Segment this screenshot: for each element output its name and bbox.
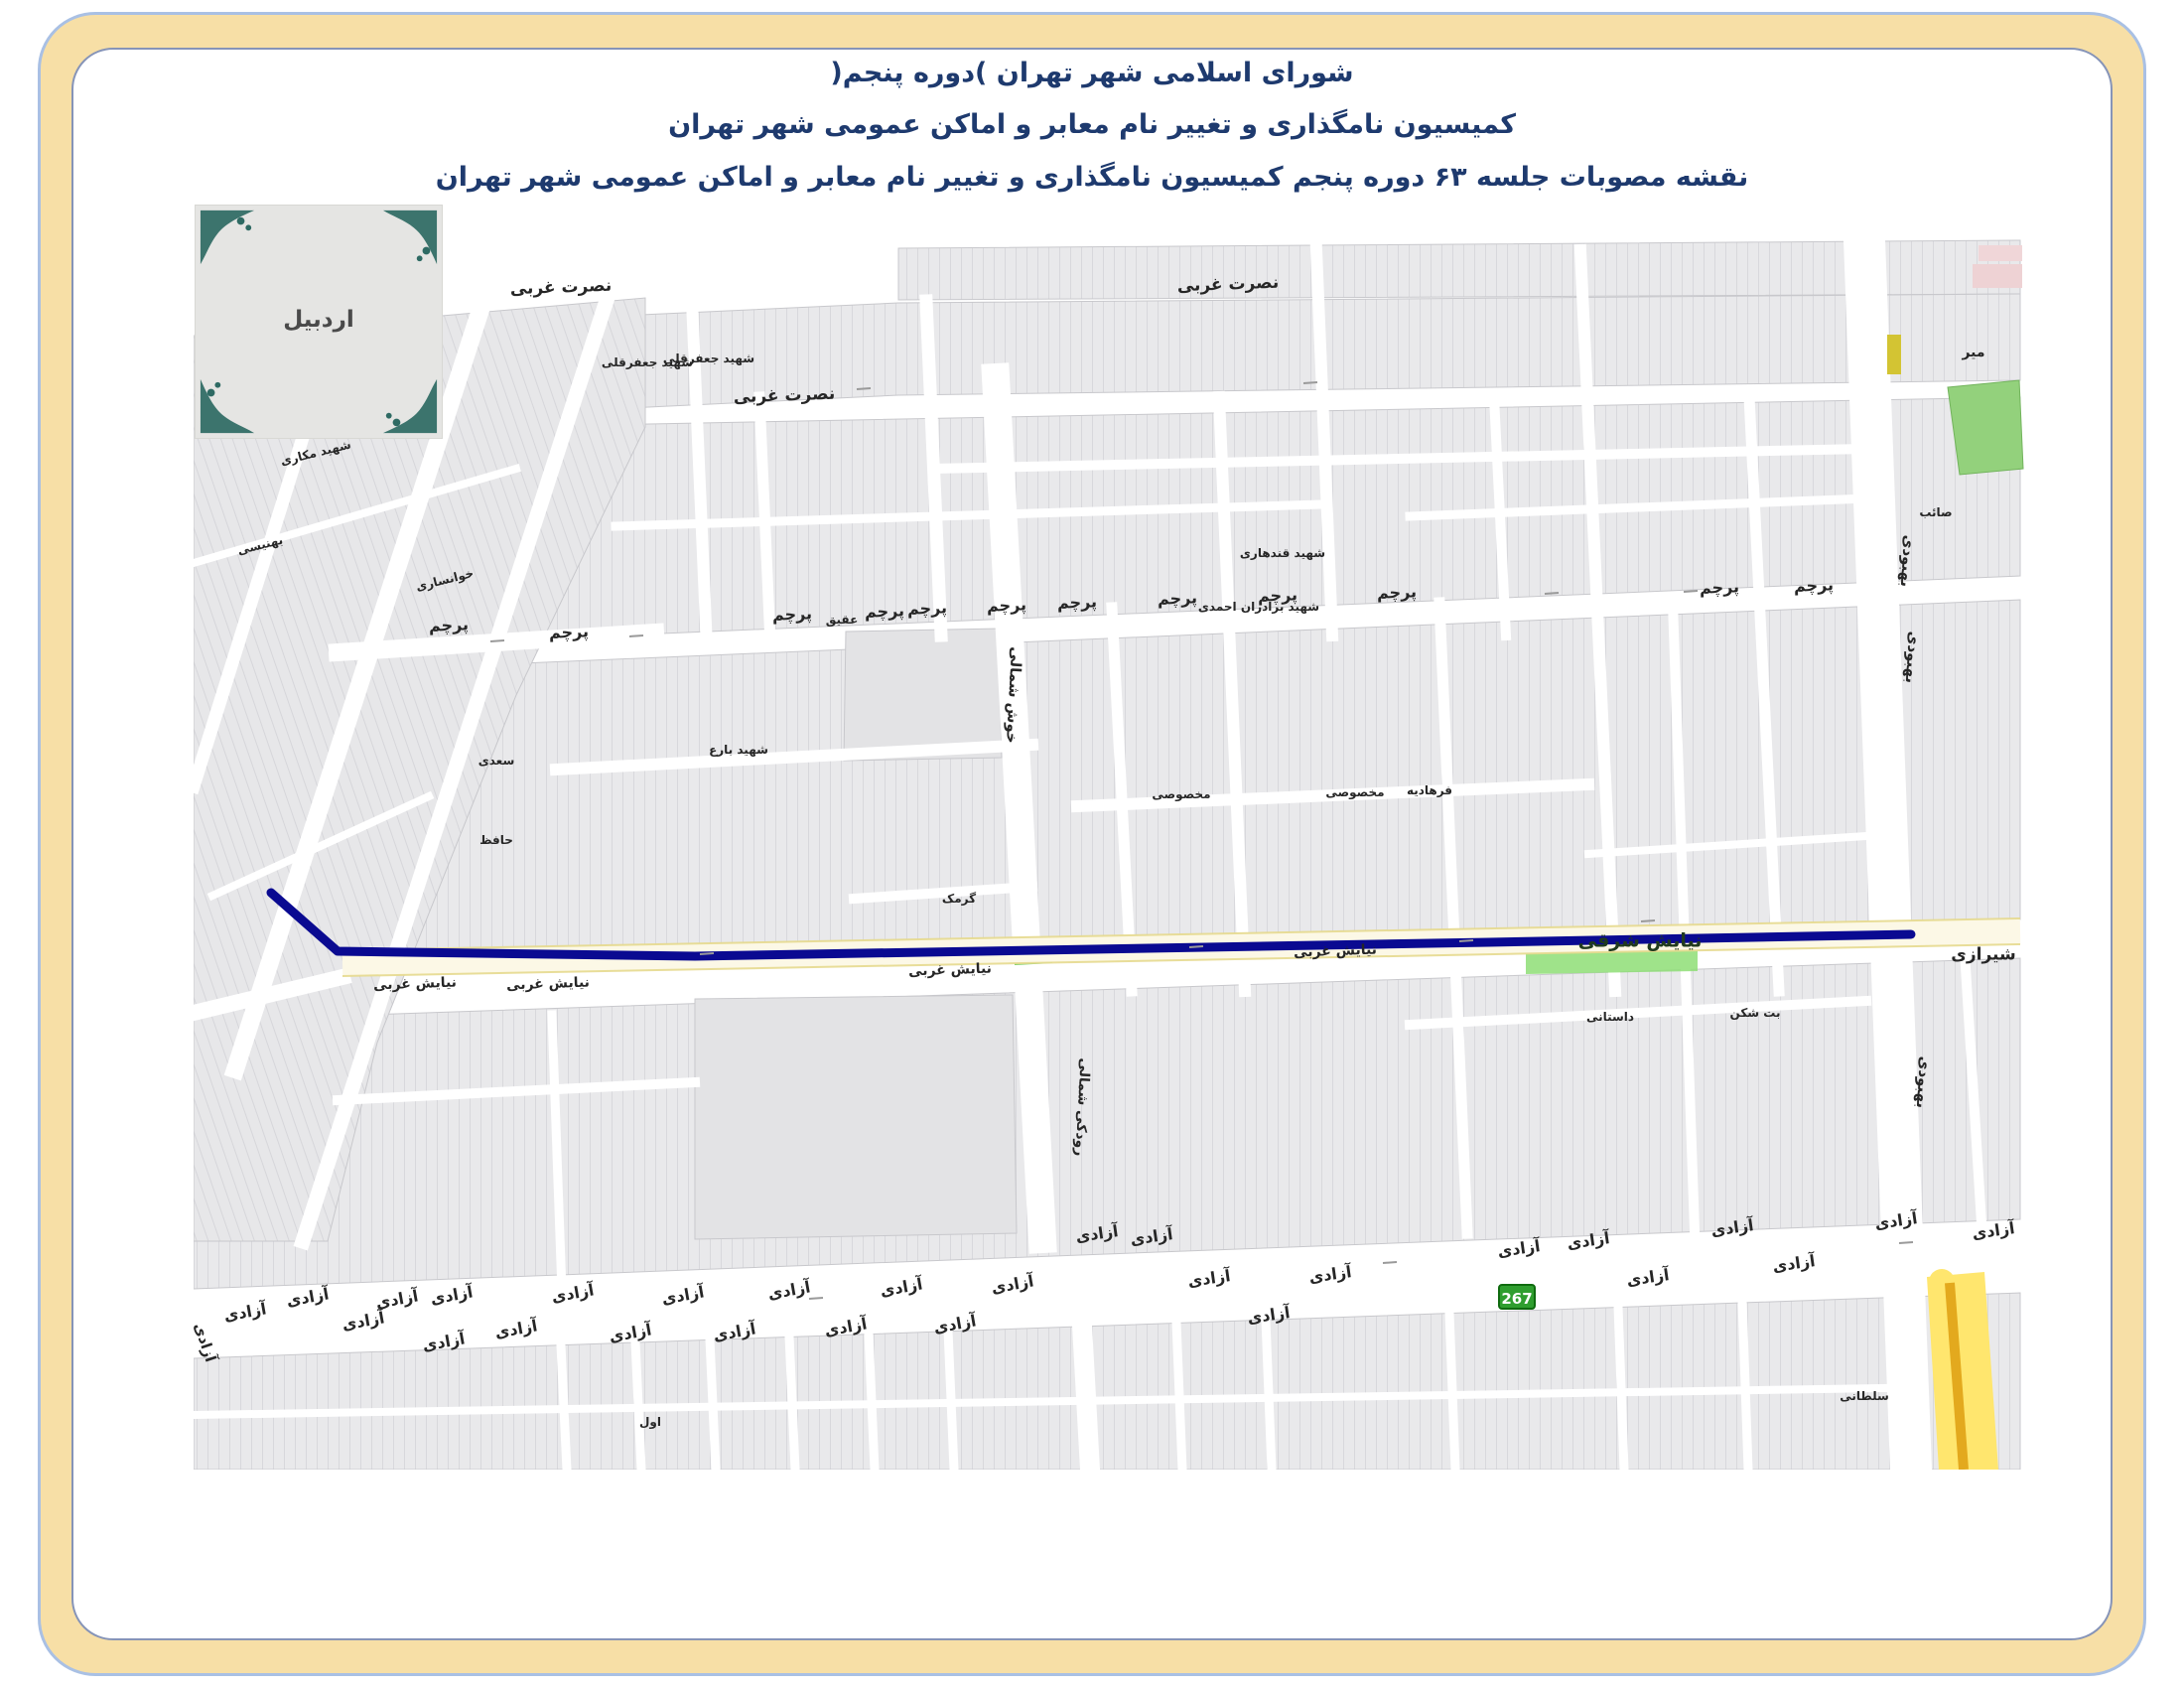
park	[1948, 380, 2023, 475]
document-page: { "header": { "line1": "شورای اسلامی شهر…	[0, 0, 2184, 1688]
yellow-road-segment	[1887, 335, 1901, 374]
ornament-icon	[199, 209, 256, 266]
pink-block	[1973, 264, 2022, 288]
ornament-icon	[381, 209, 439, 266]
ornament-icon	[381, 377, 439, 435]
stamp-label: اردبیل	[196, 307, 442, 333]
route-shield-267: 267	[1498, 1284, 1536, 1310]
header-line-2: کمیسیون نامگذاری و تغییر نام معابر و اما…	[0, 109, 2184, 140]
header-line-1: شورای اسلامی شهر تهران )دوره پنجم(	[0, 58, 2184, 88]
ornament-icon	[199, 377, 256, 435]
header-line-3: نقشه مصوبات جلسه ۶۳ دوره پنجم کمیسیون نا…	[0, 162, 2184, 193]
pink-block	[1979, 245, 2022, 261]
map-canvas	[194, 233, 2025, 1470]
stamp-box: اردبیل	[195, 205, 443, 439]
